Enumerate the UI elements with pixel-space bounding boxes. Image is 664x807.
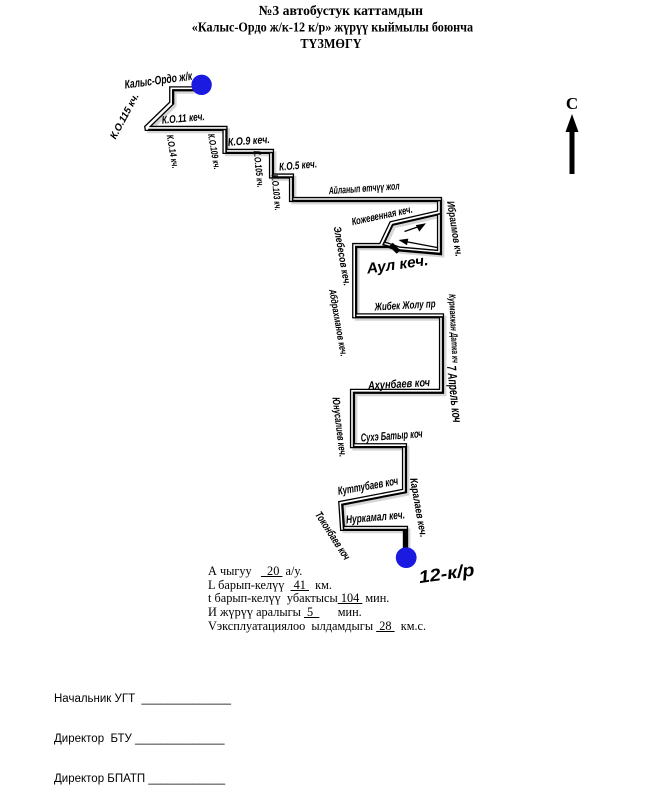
svg-text:К.О.14 кч.: К.О.14 кч. — [164, 134, 181, 169]
svg-text:Нуркамал кеч.: Нуркамал кеч. — [346, 509, 406, 526]
svg-text:Юнусалиев кеч.: Юнусалиев кеч. — [329, 397, 348, 458]
svg-text:К.О.103 кч.: К.О.103 кч. — [268, 174, 283, 211]
svg-text:ТҮЗМӨГҮ: ТҮЗМӨГҮ — [300, 37, 361, 52]
svg-text:К.О.5 кеч.: К.О.5 кеч. — [279, 158, 318, 173]
svg-text:Курманжан Датка кч: Курманжан Датка кч — [446, 294, 461, 364]
svg-text:Абдрахманов кеч.: Абдрахманов кеч. — [326, 288, 350, 358]
svg-text:Сухэ Батыр коч: Сухэ Батыр коч — [360, 428, 423, 444]
svg-text:№3 автобустук каттамдын: №3 автобустук каттамдын — [259, 4, 423, 19]
svg-text:К.О.9 кеч.: К.О.9 кеч. — [228, 134, 271, 149]
svg-text:Элебесов кеч.: Элебесов кеч. — [331, 226, 353, 287]
svg-text:К.О.11 кеч.: К.О.11 кеч. — [161, 111, 205, 127]
svg-text:Айланып өтчүү жол: Айланып өтчүү жол — [328, 180, 401, 197]
svg-text:Ибраимов кч.: Ибраимов кч. — [444, 200, 465, 257]
svg-text:Аул кеч.: Аул кеч. — [365, 252, 430, 278]
svg-text:С: С — [566, 94, 578, 113]
svg-text:7 Апрель коч: 7 Апрель коч — [444, 365, 465, 424]
svg-text:К.О.109 кч.: К.О.109 кч. — [205, 133, 222, 170]
svg-text:Жибек Жолу пр: Жибек Жолу пр — [374, 298, 436, 313]
svg-text:К.О.115 кч.: К.О.115 кч. — [108, 92, 141, 141]
svg-text:12-к/р: 12-к/р — [417, 559, 476, 587]
svg-text:«Калыс-Ордо ж/к-12 к/р» жүрүү: «Калыс-Ордо ж/к-12 к/р» жүрүү кыймылы бо… — [192, 20, 473, 35]
